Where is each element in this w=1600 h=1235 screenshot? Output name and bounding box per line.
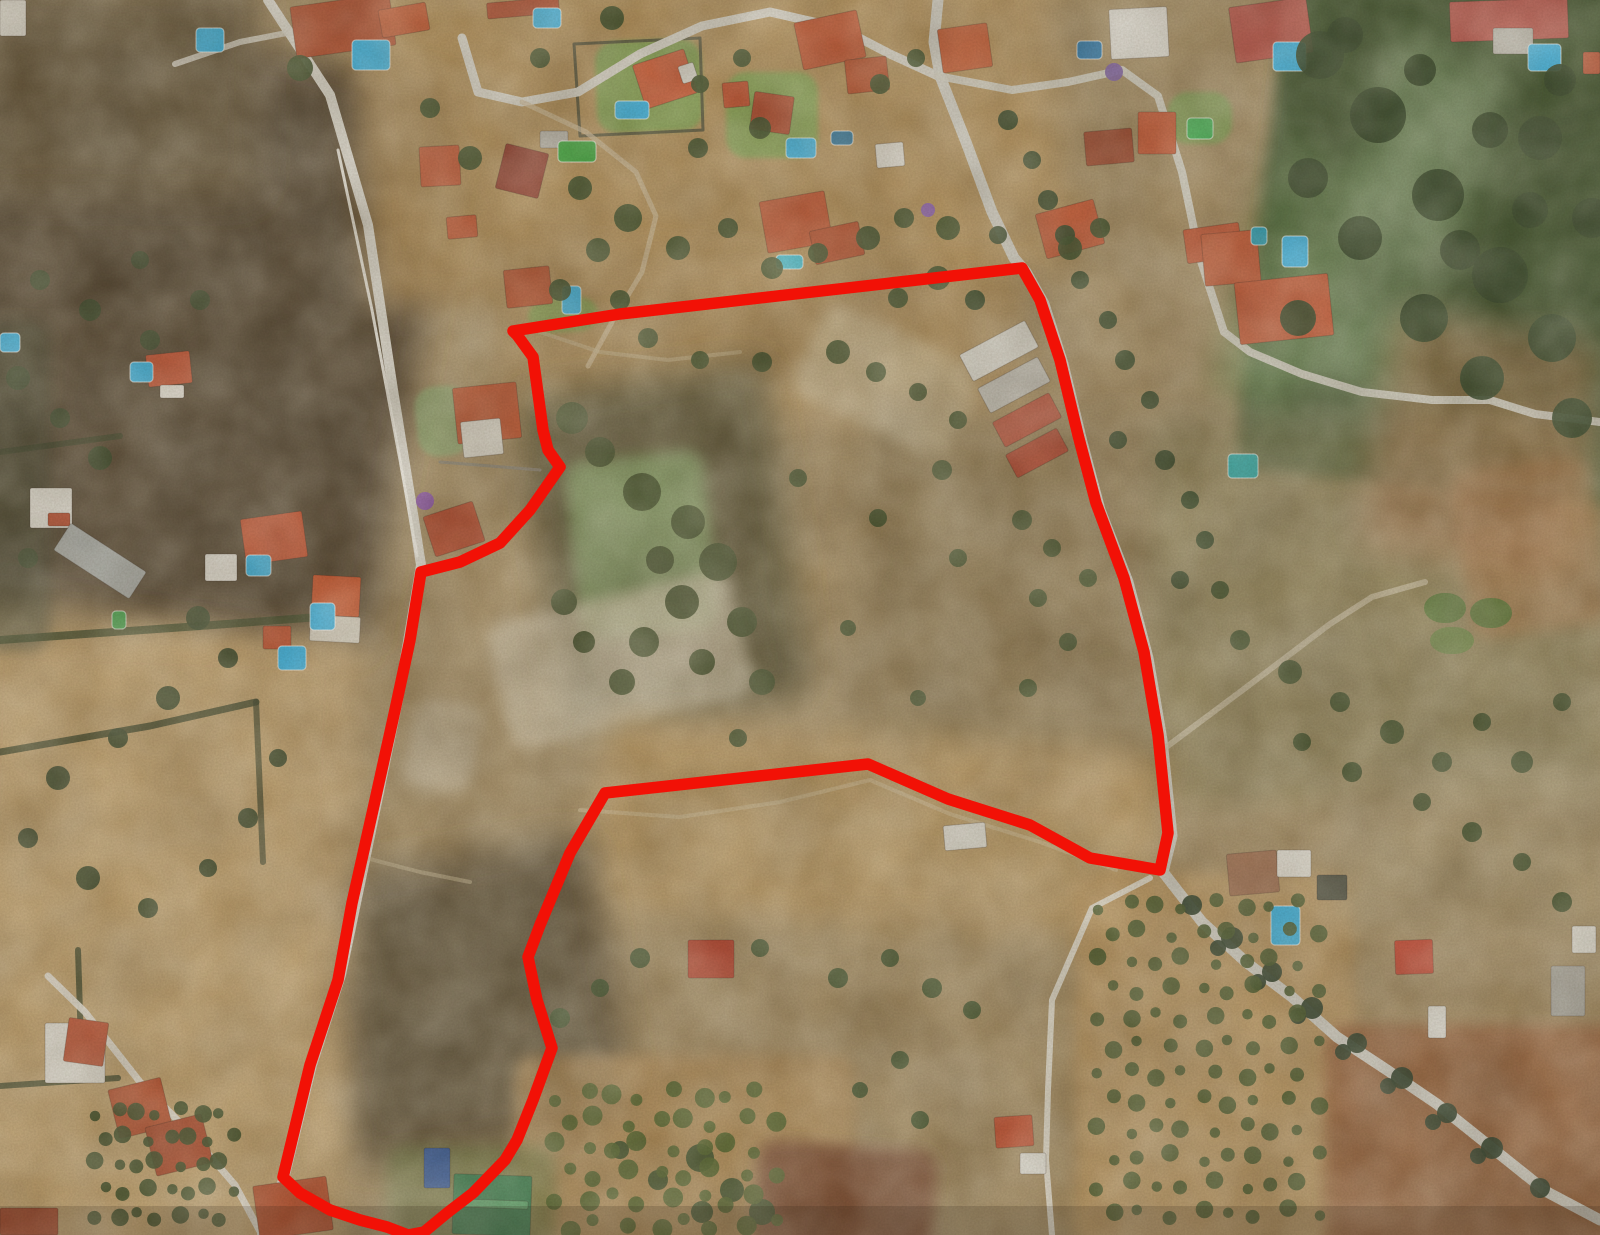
satellite-map — [0, 0, 1600, 1235]
terrain-grain-texture — [0, 0, 1600, 1235]
imagery-seam — [0, 1206, 1600, 1235]
map-stage — [0, 0, 1600, 1235]
